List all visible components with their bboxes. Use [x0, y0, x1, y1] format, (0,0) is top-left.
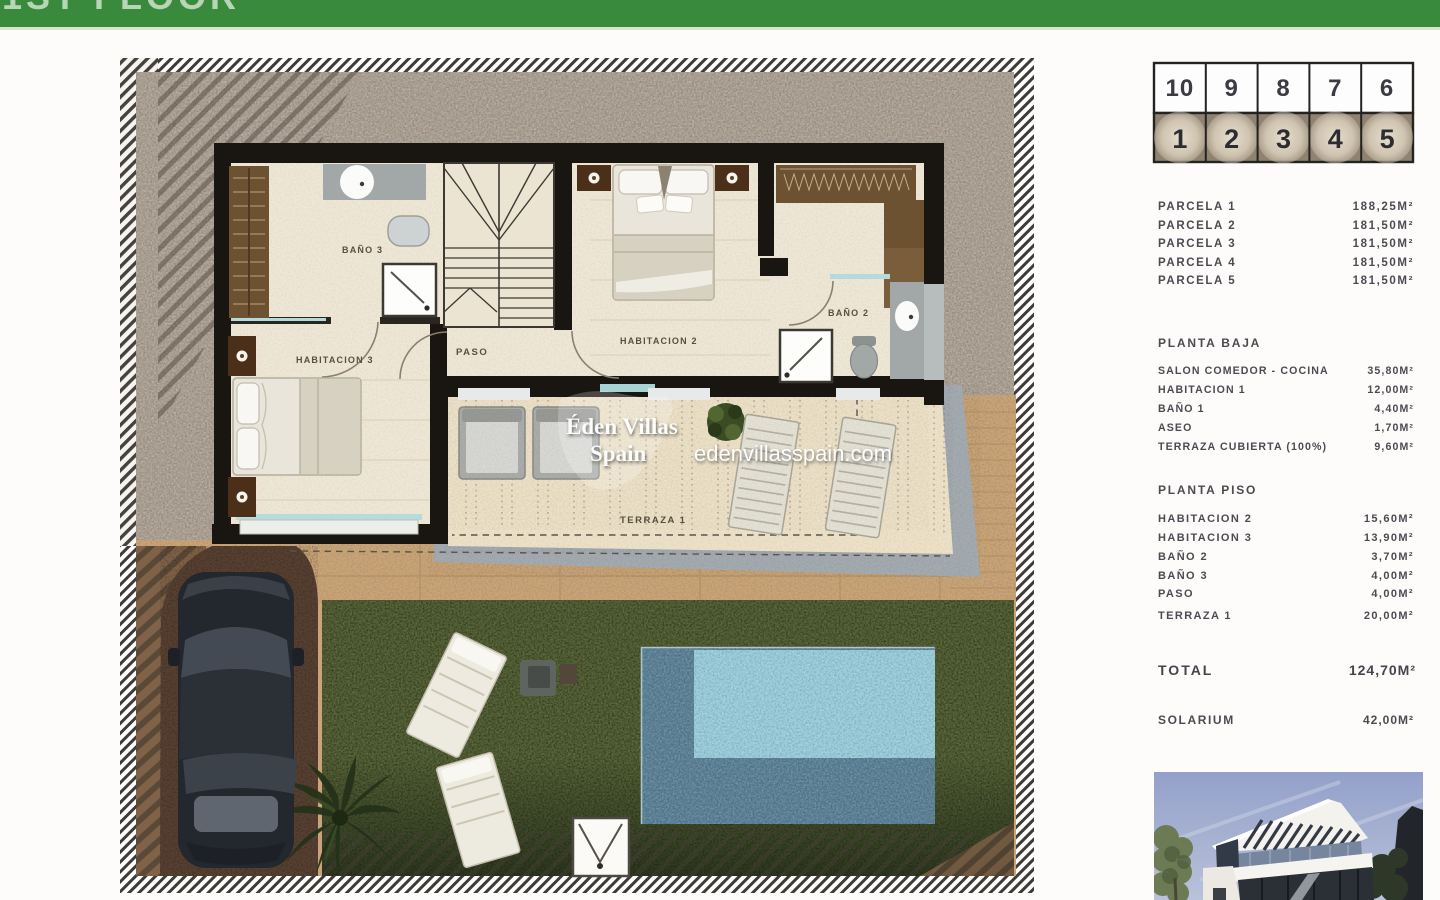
svg-text:8: 8	[1276, 75, 1290, 102]
svg-text:BAÑO 2: BAÑO 2	[1158, 550, 1208, 563]
svg-text:9,60M²: 9,60M²	[1374, 441, 1414, 453]
svg-text:124,70M²: 124,70M²	[1349, 662, 1416, 678]
svg-text:9: 9	[1225, 75, 1239, 102]
svg-text:6: 6	[1380, 75, 1394, 102]
svg-text:HABITACION 3: HABITACION 3	[296, 355, 374, 365]
svg-text:12,00M²: 12,00M²	[1367, 384, 1414, 396]
svg-text:BAÑO 1: BAÑO 1	[1158, 402, 1205, 415]
svg-text:PARCELA 5: PARCELA 5	[1158, 275, 1236, 287]
svg-text:3: 3	[1276, 124, 1291, 154]
svg-text:SALON COMEDOR - COCINA: SALON COMEDOR - COCINA	[1158, 365, 1329, 377]
svg-text:PASO: PASO	[1158, 588, 1194, 600]
svg-text:PARCELA 2: PARCELA 2	[1158, 220, 1236, 232]
svg-text:181,50M²: 181,50M²	[1353, 238, 1414, 250]
svg-text:5: 5	[1380, 124, 1395, 154]
svg-text:2: 2	[1224, 124, 1239, 154]
svg-text:4,00M²: 4,00M²	[1371, 570, 1414, 582]
svg-text:188,25M²: 188,25M²	[1353, 201, 1414, 213]
svg-text:HABITACION 2: HABITACION 2	[620, 336, 698, 346]
svg-text:181,50M²: 181,50M²	[1353, 220, 1414, 232]
svg-text:HABITACION 3: HABITACION 3	[1158, 532, 1252, 544]
svg-text:BAÑO 2: BAÑO 2	[828, 308, 869, 318]
svg-text:7: 7	[1328, 75, 1342, 102]
svg-text:BAÑO 3: BAÑO 3	[1158, 569, 1208, 582]
svg-text:181,50M²: 181,50M²	[1353, 257, 1414, 269]
svg-text:4,00M²: 4,00M²	[1371, 588, 1414, 600]
svg-text:4: 4	[1328, 124, 1343, 154]
svg-text:Spain: Spain	[590, 441, 646, 466]
svg-text:BAÑO 3: BAÑO 3	[342, 245, 383, 255]
svg-text:181,50M²: 181,50M²	[1353, 275, 1414, 287]
svg-text:20,00M²: 20,00M²	[1364, 610, 1414, 622]
svg-text:10: 10	[1166, 75, 1195, 102]
svg-text:1ST FLOOR: 1ST FLOOR	[2, 0, 240, 17]
svg-text:edenvillasspain.com: edenvillasspain.com	[694, 441, 892, 466]
svg-text:TOTAL: TOTAL	[1158, 662, 1213, 678]
svg-text:PARCELA 1: PARCELA 1	[1158, 201, 1236, 213]
svg-text:Éden Villas: Éden Villas	[566, 414, 678, 439]
svg-text:PLANTA BAJA: PLANTA BAJA	[1158, 336, 1261, 350]
svg-text:TERRAZA CUBIERTA (100%): TERRAZA CUBIERTA (100%)	[1158, 441, 1327, 453]
svg-text:4,40M²: 4,40M²	[1374, 403, 1414, 415]
svg-text:PARCELA 3: PARCELA 3	[1158, 238, 1236, 250]
svg-text:PASO: PASO	[456, 347, 488, 358]
svg-text:13,90M²: 13,90M²	[1364, 532, 1414, 544]
svg-text:TERRAZA 1: TERRAZA 1	[1158, 610, 1232, 622]
svg-text:15,60M²: 15,60M²	[1364, 513, 1414, 525]
svg-text:1,70M²: 1,70M²	[1374, 422, 1414, 434]
svg-text:PLANTA PISO: PLANTA PISO	[1158, 483, 1257, 497]
svg-text:35,80M²: 35,80M²	[1367, 365, 1414, 377]
svg-text:HABITACION 2: HABITACION 2	[1158, 513, 1252, 525]
svg-text:PARCELA 4: PARCELA 4	[1158, 257, 1236, 269]
svg-text:1: 1	[1172, 124, 1187, 154]
svg-text:ASEO: ASEO	[1158, 422, 1192, 434]
svg-text:SOLARIUM: SOLARIUM	[1158, 713, 1235, 727]
svg-text:HABITACION 1: HABITACION 1	[1158, 384, 1246, 396]
svg-text:42,00M²: 42,00M²	[1363, 713, 1414, 727]
svg-text:3,70M²: 3,70M²	[1371, 551, 1414, 563]
